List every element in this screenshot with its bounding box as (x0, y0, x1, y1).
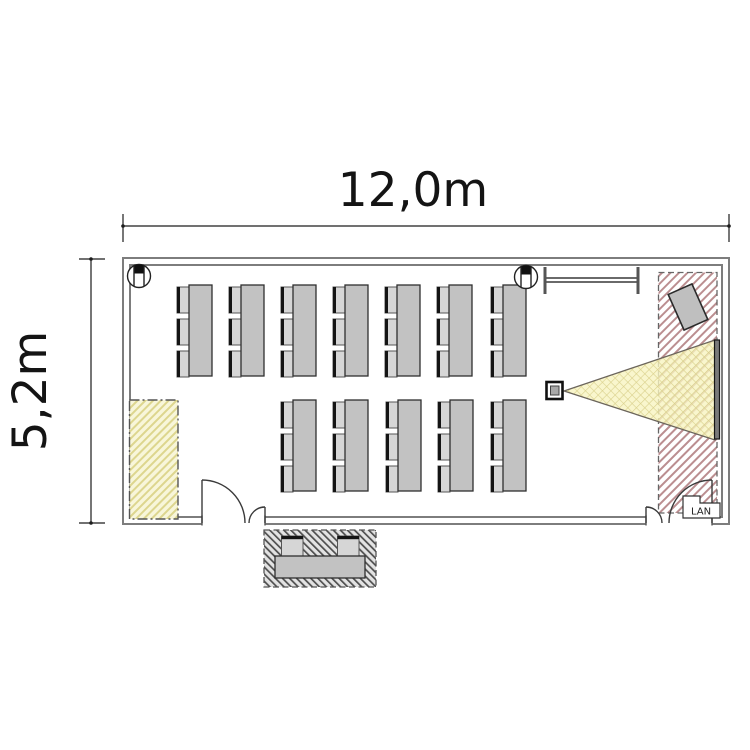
floor-plan: LAN 12,0m 5,2m (0, 0, 750, 750)
desk-with-chairs (438, 400, 473, 492)
chair-backrest (333, 434, 336, 460)
chair-backrest (437, 351, 440, 377)
door-opening-left (202, 514, 265, 527)
lan-label: LAN (691, 507, 711, 518)
whiteboard (545, 267, 638, 294)
width-dimension-label: 12,0m (338, 163, 488, 218)
chair-backrest (491, 466, 494, 492)
chair-backrest (281, 319, 284, 345)
chair-backrest (282, 536, 304, 539)
chair-backrest (438, 434, 441, 460)
desk-with-chairs (281, 400, 316, 492)
desk (293, 400, 316, 491)
desk-with-chairs (437, 285, 472, 377)
desk (503, 400, 526, 491)
chair-backrest (281, 287, 284, 313)
chair-backrest (333, 287, 336, 313)
desk (189, 285, 212, 376)
desk-with-chairs (385, 285, 420, 377)
desk (450, 400, 473, 491)
desk-with-chairs (229, 285, 264, 377)
desk (397, 285, 420, 376)
chair-backrest (333, 402, 336, 428)
chair-backrest (491, 351, 494, 377)
chair-backrest (177, 351, 180, 377)
chair-backrest (437, 287, 440, 313)
desk-with-chairs (281, 285, 316, 377)
desk (449, 285, 472, 376)
chair-backrest (281, 434, 284, 460)
chair-backrest (491, 402, 494, 428)
chair-backrest (333, 319, 336, 345)
chair-backrest (491, 319, 494, 345)
desk (345, 285, 368, 376)
desk-with-chairs (333, 285, 368, 377)
wall-speaker-icon (128, 265, 151, 288)
projector (547, 382, 563, 399)
storage-area (130, 400, 179, 519)
desk-with-chairs (491, 400, 526, 492)
chair-backrest (333, 351, 336, 377)
student-desks (177, 285, 526, 492)
chair-backrest (338, 536, 360, 539)
chair-backrest (437, 319, 440, 345)
chair-backrest (438, 402, 441, 428)
reception-area (264, 530, 376, 587)
chair-backrest (333, 466, 336, 492)
desk-with-chairs (491, 285, 526, 377)
floor-plan-drawing: LAN 12,0m 5,2m (0, 0, 750, 750)
chair-backrest (229, 287, 232, 313)
desk (293, 285, 316, 376)
projection-screen (715, 340, 720, 439)
chair-backrest (177, 319, 180, 345)
projector-beam (564, 340, 715, 440)
chair-backrest (281, 402, 284, 428)
chair-backrest (438, 466, 441, 492)
height-dimension-label: 5,2m (3, 331, 58, 452)
chair-backrest (385, 319, 388, 345)
chair-backrest (386, 434, 389, 460)
desk-with-chairs (386, 400, 421, 492)
dimension-left: 5,2m (3, 257, 105, 525)
desk (398, 400, 421, 491)
chair-backrest (386, 466, 389, 492)
chair-backrest (491, 434, 494, 460)
chair-backrest (229, 319, 232, 345)
wall-speaker-icon (515, 266, 538, 289)
reception-desk (275, 556, 365, 578)
chair-backrest (491, 287, 494, 313)
desk (503, 285, 526, 376)
desk-with-chairs (177, 285, 212, 377)
chair-backrest (229, 351, 232, 377)
desk-with-chairs (333, 400, 368, 492)
chair-backrest (281, 351, 284, 377)
chair-backrest (385, 287, 388, 313)
desk (345, 400, 368, 491)
desk (241, 285, 264, 376)
chair-backrest (386, 402, 389, 428)
chair-backrest (281, 466, 284, 492)
chair-backrest (385, 351, 388, 377)
dimension-top: 12,0m (121, 163, 731, 242)
chair-backrest (177, 287, 180, 313)
